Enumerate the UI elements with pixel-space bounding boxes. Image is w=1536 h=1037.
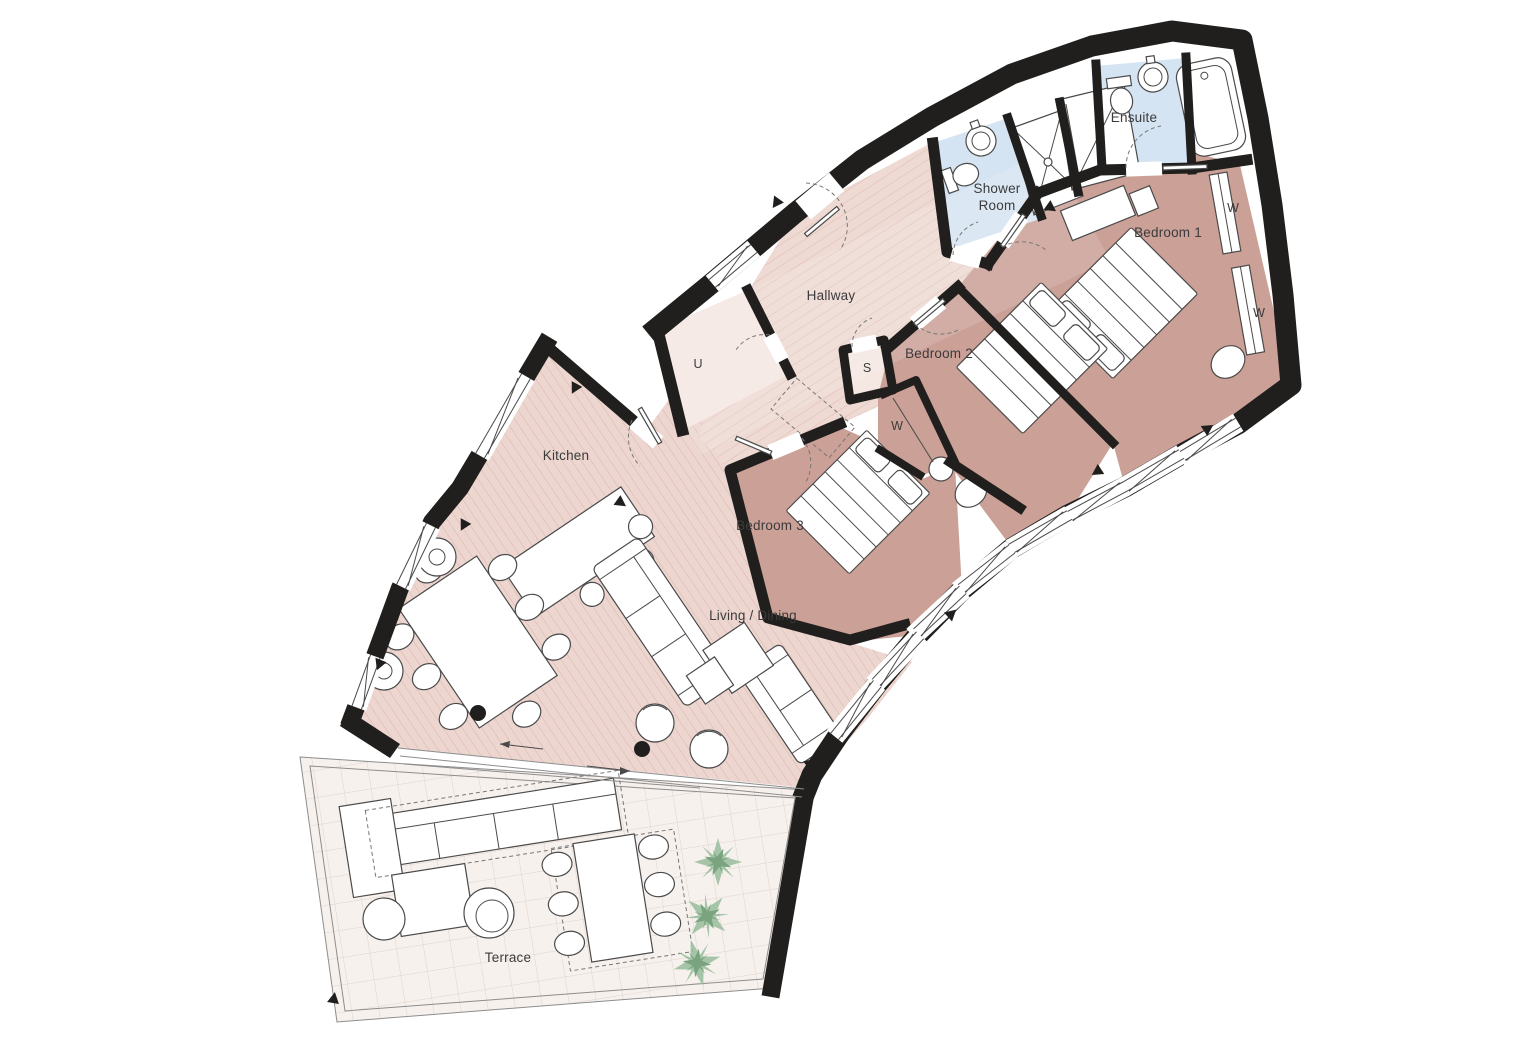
- window: [706, 241, 761, 291]
- entrance-marker: [768, 196, 784, 212]
- label-utility: U: [693, 357, 702, 371]
- label-terrace: Terrace: [485, 950, 531, 965]
- floorplan-page: Shower Room Ensuite Bedroom 1 W W Hallwa…: [0, 0, 1536, 1037]
- floorplan-svg: Shower Room Ensuite Bedroom 1 W W Hallwa…: [0, 0, 1536, 1037]
- label-wardrobe-2: W: [1253, 306, 1265, 320]
- label-bedroom3: Bedroom 3: [736, 518, 804, 533]
- label-bedroom1: Bedroom 1: [1134, 225, 1202, 240]
- ensuite-partition: [1096, 64, 1102, 168]
- label-bedroom2: Bedroom 2: [905, 346, 973, 361]
- label-store: S: [863, 361, 871, 375]
- floor-dot: [470, 705, 486, 721]
- pouf: [363, 898, 405, 940]
- label-kitchen: Kitchen: [543, 448, 589, 463]
- label-wardrobe-1: W: [1227, 201, 1239, 215]
- label-shower-room-2: Room: [979, 198, 1016, 213]
- round-chair: [464, 888, 514, 938]
- label-ensuite: Ensuite: [1111, 110, 1157, 125]
- bath-partition: [1186, 57, 1192, 170]
- label-hallway: Hallway: [807, 288, 856, 303]
- label-shower-room: Shower: [974, 181, 1021, 196]
- label-living-dining: Living / Dining: [709, 608, 797, 623]
- floor-dot: [634, 741, 650, 757]
- label-wardrobe-3: W: [891, 419, 903, 433]
